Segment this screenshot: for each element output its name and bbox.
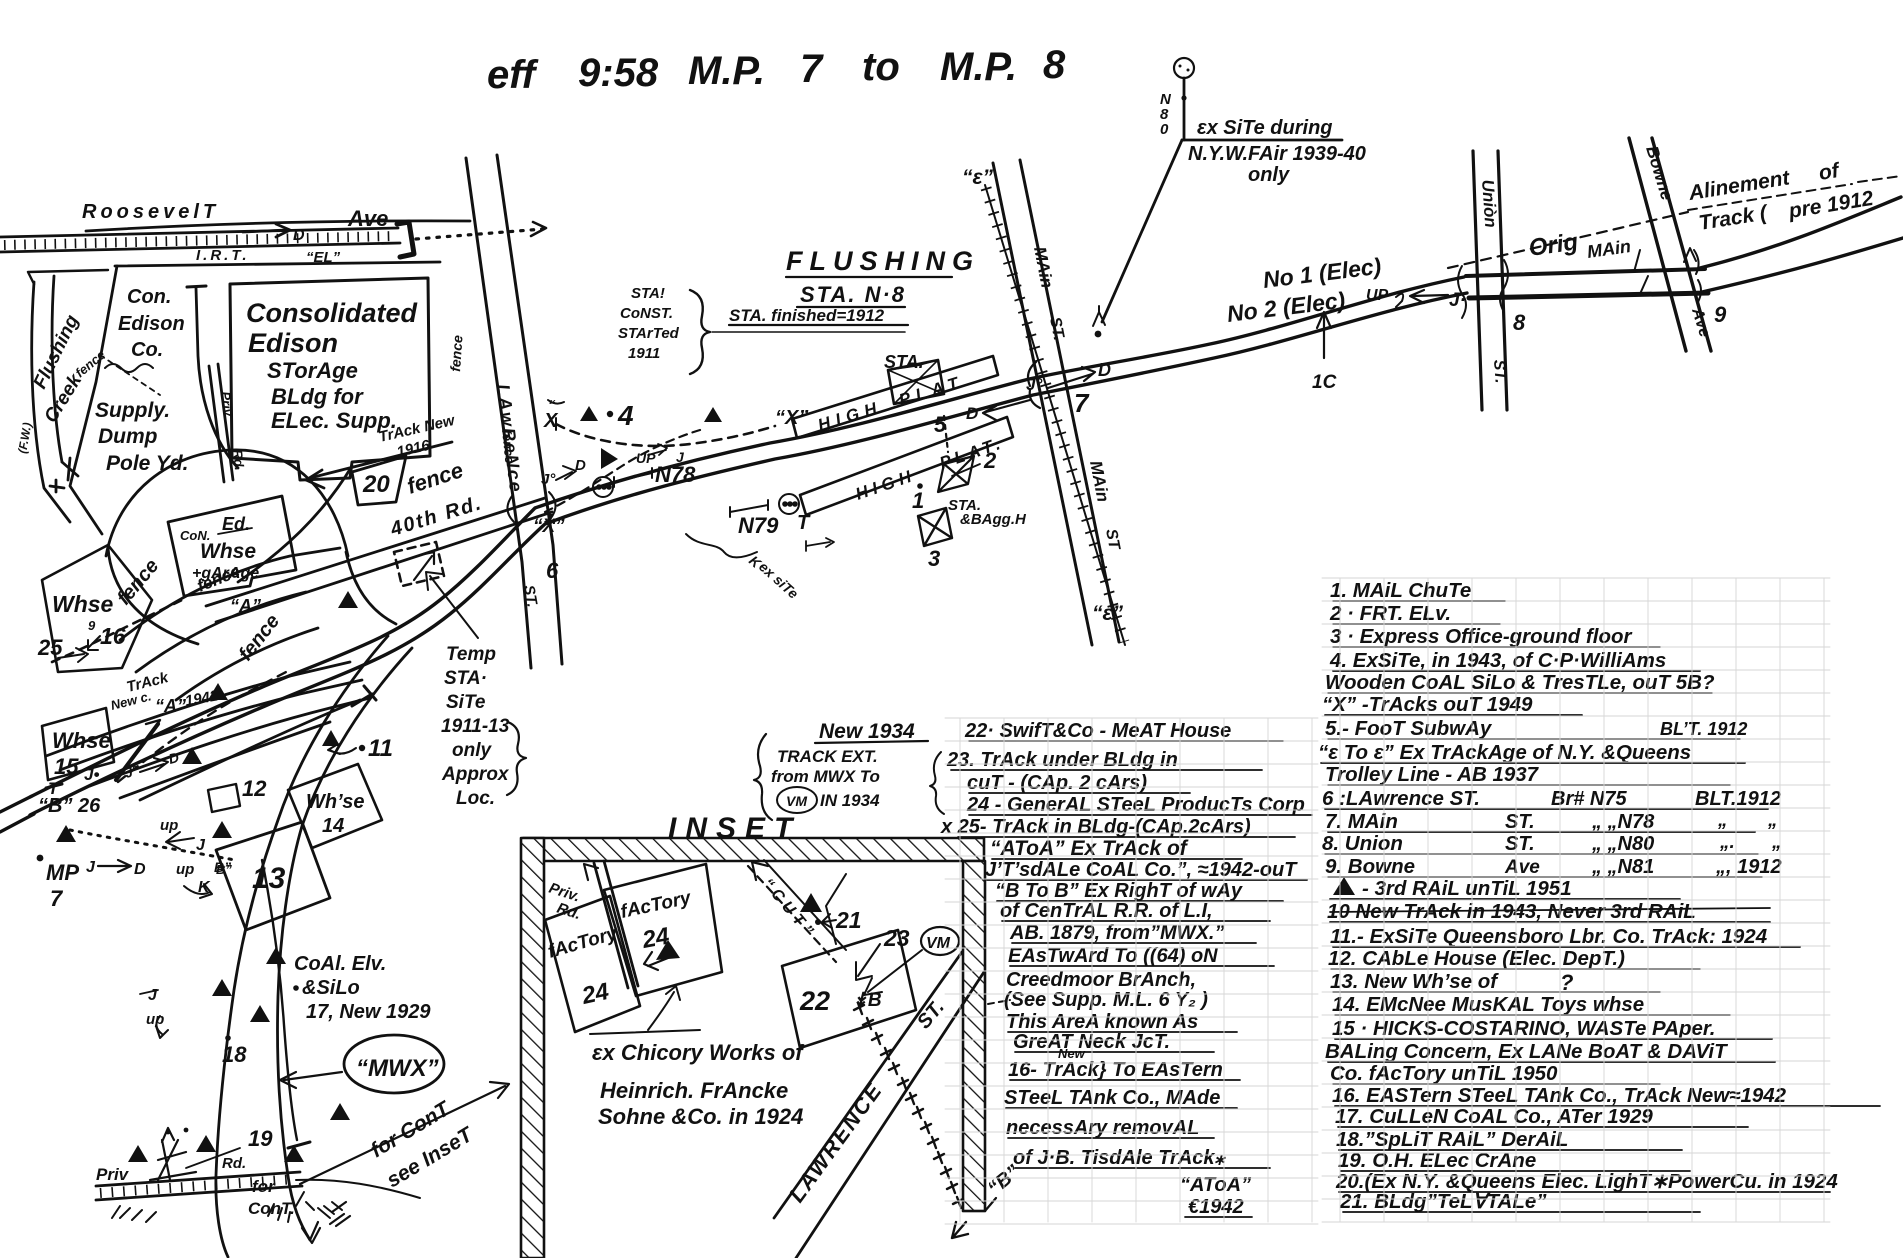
svg-text:up: up [176, 861, 194, 878]
svg-text:Edison: Edison [118, 313, 185, 335]
svg-text:ST.: ST. [1505, 811, 1535, 833]
svg-text:“X”: “X” [775, 407, 808, 429]
svg-text:BLT.1912: BLT.1912 [1695, 788, 1781, 810]
svg-text:CoNST.: CoNST. [620, 305, 673, 322]
svg-text:Trolley Line - AB 1937: Trolley Line - AB 1937 [1325, 763, 1540, 786]
svg-text:necessAry removAL: necessAry removAL [1006, 1117, 1199, 1139]
svg-text:Br# N75: Br# N75 [1551, 788, 1627, 810]
svg-text:5.- FooT SubwAy: 5.- FooT SubwAy [1325, 717, 1493, 740]
svg-text:STA·: STA· [444, 668, 487, 689]
svg-text:7: 7 [50, 886, 64, 911]
svg-text:Supply.: Supply. [95, 399, 170, 422]
svg-text:New 1934: New 1934 [819, 720, 915, 743]
svg-text:of J·B. TisdAle TrAck⁎: of J·B. TisdAle TrAck⁎ [1013, 1147, 1227, 1169]
svg-text:Priv: Priv [96, 1165, 130, 1184]
svg-text:20: 20 [362, 471, 390, 498]
svg-text:9:58: 9:58 [578, 51, 659, 95]
svg-text:J: J [196, 837, 206, 854]
svg-text:16. EASTern STeeL TAnk Co.,: 16. EASTern STeeL TAnk Co., TrAck New≈19… [1332, 1084, 1787, 1107]
svg-text:6 :LAwrence ST.: 6 :LAwrence ST. [1322, 787, 1480, 810]
svg-text:19. O.H. ELec CrAne: 19. O.H. ELec CrAne [1338, 1149, 1536, 1172]
svg-text:up: up [160, 817, 178, 834]
svg-text:cuT - (CAp. 2 cArs): cuT - (CAp. 2 cArs) [967, 772, 1147, 794]
svg-text:TRACK EXT.: TRACK EXT. [777, 747, 878, 766]
svg-text:STArTed: STArTed [618, 325, 680, 342]
svg-text:&SiLo: &SiLo [302, 977, 360, 999]
svg-text:11: 11 [368, 735, 393, 762]
svg-text:J.: J. [544, 511, 557, 528]
svg-text:24 - GenerAL STeeL ProducTs Co: 24 - GenerAL STeeL ProducTs Corp [966, 794, 1305, 816]
svg-text:Ave: Ave [347, 206, 388, 231]
svg-text:to: to [862, 45, 900, 89]
svg-text:x 25- TrAck in BLdg-(CAp.2cArs: x 25- TrAck in BLdg-(CAp.2cArs) [940, 816, 1251, 838]
svg-text:“AToA” Ex TrAck of: “AToA” Ex TrAck of [990, 837, 1189, 860]
svg-text:CoAl. Elv.: CoAl. Elv. [294, 953, 386, 975]
svg-text:J’T’sdALe CoAL Co.”, ≈1942-ouT: J’T’sdALe CoAL Co.”, ≈1942-ouT [985, 859, 1298, 881]
svg-text:2: 2 [983, 448, 997, 473]
svg-text:“ɛ To ɛ” Ex TrAckAge of N.Y. &: “ɛ To ɛ” Ex TrAckAge of N.Y. &Queens [1318, 741, 1691, 764]
svg-text:D: D [966, 404, 978, 423]
svg-text:1911-13: 1911-13 [441, 716, 510, 737]
svg-text:Creedmoor BrAnch,: Creedmoor BrAnch, [1006, 969, 1196, 991]
svg-text:Rd.: Rd. [230, 449, 247, 471]
svg-text:„ „N78: „ „N78 [1591, 811, 1655, 833]
svg-text:15: 15 [54, 754, 79, 779]
svg-text:Whse: Whse [52, 591, 114, 617]
svg-text:13. New Wh’se of: 13. New Wh’se of [1330, 970, 1499, 993]
svg-text:J•: J• [84, 765, 99, 784]
svg-text:Approx: Approx [441, 764, 510, 785]
svg-text:“B” 26: “B” 26 [38, 795, 101, 817]
svg-text:23. TrAck under BLdg in: 23. TrAck under BLdg in [946, 749, 1178, 771]
svg-text:D: D [1098, 360, 1111, 380]
svg-text:22: 22 [799, 986, 830, 1016]
svg-text:“MWX”: “MWX” [356, 1055, 439, 1082]
svg-text:up: up [146, 1011, 164, 1028]
svg-text:STA. finished=1912: STA. finished=1912 [729, 306, 885, 325]
svg-text:only: only [1248, 164, 1290, 186]
svg-text:D: D [134, 861, 146, 878]
svg-text:7: 7 [800, 47, 824, 91]
svg-text:I.R.T.: I.R.T. [196, 247, 250, 264]
svg-text:18.”SpLiT RAiL” DerAiL: 18.”SpLiT RAiL” DerAiL [1336, 1128, 1568, 1151]
svg-text:for: for [252, 1177, 276, 1196]
svg-text:BL’T. 1912: BL’T. 1912 [1660, 719, 1747, 739]
svg-text:13: 13 [252, 862, 286, 895]
svg-text:VM: VM [926, 935, 951, 952]
svg-text:Whse: Whse [52, 728, 111, 753]
svg-text:Wh’se: Wh’se [306, 791, 365, 813]
svg-text:“ɛ”: “ɛ” [1092, 602, 1124, 625]
svg-text:6: 6 [546, 558, 559, 583]
svg-text:“: “ [548, 397, 556, 414]
svg-text:Consolidated: Consolidated [246, 298, 418, 328]
svg-text:only: only [452, 740, 492, 761]
svg-text:8: 8 [1043, 43, 1066, 87]
svg-text:16: 16 [100, 623, 126, 649]
svg-text:(See Supp. M.L. 6 Y₂ ): (See Supp. M.L. 6 Y₂ ) [1004, 989, 1208, 1011]
svg-text:9: 9 [1714, 302, 1727, 327]
svg-text:This AreA known As: This AreA known As [1006, 1011, 1198, 1033]
svg-text:Heinrich. FrAncke: Heinrich. FrAncke [600, 1078, 788, 1103]
svg-text:fence: fence [447, 334, 466, 372]
svg-text:21: 21 [835, 907, 862, 933]
svg-text:2 · FRT. ELv.: 2 · FRT. ELv. [1329, 602, 1451, 625]
svg-text:J: J [676, 449, 685, 465]
svg-text:9. Bowne: 9. Bowne [1325, 855, 1415, 878]
svg-text:25: 25 [37, 635, 63, 660]
svg-text:„ „N81: „ „N81 [1591, 856, 1654, 878]
svg-text:N78: N78 [655, 462, 696, 487]
svg-text:9: 9 [88, 618, 96, 633]
svg-text:„.: „. [1719, 832, 1735, 853]
svg-text:“B To B” Ex RighT of wAy: “B To B” Ex RighT of wAy [995, 880, 1243, 902]
svg-text:“AToA”: “AToA” [1180, 1174, 1251, 1196]
svg-text:J°: J° [541, 471, 556, 488]
svg-text:M.P.: M.P. [940, 45, 1017, 89]
svg-text:IN 1934: IN 1934 [820, 791, 880, 810]
svg-text:Sohne &Co. in 1924: Sohne &Co. in 1924 [598, 1104, 803, 1129]
svg-text:J: J [86, 859, 96, 876]
svg-text:Con.: Con. [127, 286, 171, 308]
svg-text:SiTe: SiTe [446, 692, 486, 713]
svg-text:„ „N80: „ „N80 [1591, 833, 1654, 855]
svg-text:14: 14 [322, 815, 344, 837]
svg-text:- 3rd RAiL unTiL 1951: - 3rd RAiL unTiL 1951 [1362, 877, 1572, 900]
svg-text:8. Union: 8. Union [1322, 832, 1403, 855]
svg-text:17. CuLLeN CoAL Co., ATer: 17. CuLLeN CoAL Co., ATer 1929 [1335, 1105, 1653, 1128]
svg-text:from MWX To: from MWX To [771, 767, 880, 786]
svg-text:4. ExSiTe, in 1943, of C·P·Wil: 4. ExSiTe, in 1943, of C·P·WilliAms [1329, 649, 1666, 672]
svg-text:„, 1912: „, 1912 [1715, 856, 1782, 878]
svg-text:“X” -TrAcks ouT 1949: “X” -TrAcks ouT 1949 [1322, 693, 1533, 716]
svg-text:Co. fAcTory unTiL 1950: Co. fAcTory unTiL 1950 [1330, 1062, 1558, 1085]
svg-text:M.P.: M.P. [688, 49, 765, 93]
svg-text:15 · HICKS-COSTARINO, WASTe PA: 15 · HICKS-COSTARINO, WASTe PAper. [1332, 1017, 1715, 1040]
svg-text:1911: 1911 [628, 345, 660, 362]
svg-text:19: 19 [248, 1126, 273, 1151]
svg-text:ST.: ST. [1505, 833, 1535, 855]
svg-text:Wooden CoAL SiLo & TresTLe, ou: Wooden CoAL SiLo & TresTLe, ouT 5B? [1325, 671, 1715, 694]
svg-text:23: 23 [883, 925, 910, 951]
svg-text:3 · Express Office-ground flo: 3 · Express Office-ground floor [1330, 625, 1632, 648]
svg-text:12: 12 [242, 776, 267, 801]
svg-text:1. MAiL ChuTe: 1. MAiL ChuTe [1330, 579, 1471, 602]
svg-text:STA.: STA. [884, 352, 924, 372]
svg-text:of CenTrAL R.R. of L.I,: of CenTrAL R.R. of L.I, [1000, 900, 1213, 922]
svg-text:16- TrAck} To EAsTern: 16- TrAck} To EAsTern [1008, 1059, 1223, 1081]
svg-text:14. EMcNee MusKAL Toys whse: 14. EMcNee MusKAL Toys whse [1332, 993, 1644, 1016]
svg-text:Rd.: Rd. [222, 1155, 246, 1172]
svg-text:N.Y.W.FAir 1939-40: N.Y.W.FAir 1939-40 [1188, 143, 1366, 165]
svg-text:8: 8 [1513, 310, 1526, 335]
svg-text:BLdg for: BLdg for [271, 384, 364, 409]
svg-text:1: 1 [912, 488, 924, 513]
svg-text:T: T [797, 512, 811, 534]
svg-text:Uniòn: Uniòn [1478, 179, 1500, 228]
svg-text:Ave: Ave [1504, 857, 1540, 878]
svg-text:εx SiTe during: εx SiTe during [1197, 117, 1333, 139]
svg-text:Dump: Dump [98, 425, 158, 448]
svg-text:MP: MP [46, 860, 79, 885]
svg-text:7. MAin: 7. MAin [1325, 810, 1398, 833]
svg-text:B”: B” [216, 862, 232, 877]
svg-text:New: New [1058, 1046, 1086, 1061]
svg-text:11.- ExSiTe Queensboro Lbr. C: 11.- ExSiTe Queensboro Lbr. Co. TrAck: 1… [1330, 925, 1768, 948]
svg-text:4: 4 [617, 400, 634, 431]
svg-text:“ɛ”: “ɛ” [962, 166, 994, 189]
svg-text:“A”: “A” [230, 596, 261, 616]
svg-text:STeeL TAnk Co., MAde: STeeL TAnk Co., MAde [1004, 1087, 1220, 1109]
svg-text:STorAge: STorAge [267, 358, 358, 383]
svg-text:Edison: Edison [248, 328, 338, 358]
svg-text:12. CAbLe House (Elec. DepT.): 12. CAbLe House (Elec. DepT.) [1328, 947, 1625, 970]
svg-text:€1942: €1942 [1188, 1196, 1244, 1218]
svg-text:Loc.: Loc. [456, 788, 495, 809]
svg-text:VM: VM [786, 793, 807, 809]
svg-text:18: 18 [222, 1042, 247, 1067]
svg-text:D: D [293, 227, 305, 244]
svg-text:BALing Concern, Ex LANe BoA: BALing Concern, Ex LANe BoAT & DAViT [1325, 1040, 1728, 1063]
svg-text:UP: UP [1366, 287, 1389, 304]
svg-text:N79: N79 [738, 513, 779, 538]
svg-text:0: 0 [1160, 121, 1169, 138]
svg-text:3: 3 [928, 546, 940, 571]
svg-text:7: 7 [1074, 388, 1090, 418]
svg-text:Priv.: Priv. [218, 391, 236, 420]
svg-text:Temp: Temp [446, 644, 496, 665]
svg-text:1C: 1C [1312, 372, 1337, 393]
svg-text:J·: J· [1449, 290, 1466, 311]
svg-text:17, New 1929: 17, New 1929 [306, 1001, 431, 1023]
svg-text:RoosevelT: RoosevelT [82, 201, 219, 223]
svg-text:24: 24 [579, 978, 612, 1010]
svg-text:„: „ [1717, 810, 1728, 831]
svg-text:ST.: ST. [1490, 359, 1509, 384]
svg-text:ɛx Chicory Works of: ɛx Chicory Works of [592, 1040, 805, 1065]
svg-text:STA!: STA! [631, 285, 665, 302]
svg-text:„: „ [1767, 810, 1778, 831]
svg-text:Whse: Whse [200, 540, 256, 563]
svg-text:&BAgg.H: &BAgg.H [960, 511, 1027, 528]
svg-text:FLUSHING: FLUSHING [786, 246, 980, 276]
svg-text:eff: eff [487, 53, 539, 97]
svg-text:Co.: Co. [131, 339, 163, 361]
svg-text:STA. N·8: STA. N·8 [800, 282, 906, 307]
